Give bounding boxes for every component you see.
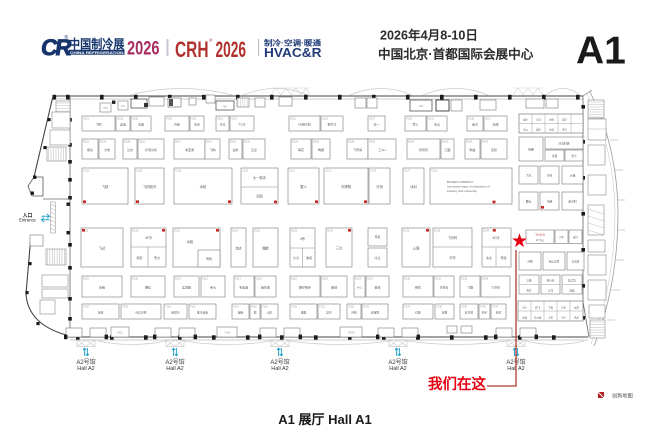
svg-text:B114: B114 xyxy=(206,140,212,143)
svg-text:创新地图: 创新地图 xyxy=(612,392,633,400)
svg-text:冷E: 冷E xyxy=(559,235,564,239)
svg-text:B126: B126 xyxy=(313,140,319,143)
svg-text:F118: F118 xyxy=(262,305,268,308)
svg-text:F112: F112 xyxy=(190,305,196,308)
svg-text:C127: C127 xyxy=(404,169,411,172)
svg-text:林山冷风: 林山冷风 xyxy=(549,260,560,264)
svg-text:雪人: 雪人 xyxy=(571,154,577,158)
svg-text:绿冷: 绿冷 xyxy=(523,118,528,122)
svg-text:雪人: 雪人 xyxy=(300,184,307,189)
svg-text:冷冽: 冷冽 xyxy=(376,184,383,189)
svg-text:考七: 考七 xyxy=(210,284,216,289)
svg-text:小玉: 小玉 xyxy=(548,316,554,320)
svg-text:Hall A2: Hall A2 xyxy=(389,366,406,372)
svg-text:飞翔: 飞翔 xyxy=(467,284,473,289)
svg-text:B110: B110 xyxy=(139,140,145,143)
svg-text:飞雪: 飞雪 xyxy=(548,306,554,310)
svg-text:梅兰冷: 梅兰冷 xyxy=(327,121,336,126)
svg-text:冰轮: 冰轮 xyxy=(200,184,207,189)
svg-text:F144: F144 xyxy=(492,305,498,308)
svg-text:7P28: 7P28 xyxy=(348,331,355,335)
svg-text:C105: C105 xyxy=(136,169,143,172)
svg-text:雪冠: 雪冠 xyxy=(500,255,506,260)
svg-text:B108: B108 xyxy=(124,140,130,143)
svg-text:E106: E106 xyxy=(132,277,138,280)
svg-text:飞豹制冷: 飞豹制冷 xyxy=(143,184,157,189)
svg-text:升鞋: 升鞋 xyxy=(351,310,357,314)
svg-text:中冷: 中冷 xyxy=(449,255,456,260)
svg-text:B136: B136 xyxy=(442,140,448,143)
svg-text:冷山: 冷山 xyxy=(523,128,528,132)
svg-text:B128: B128 xyxy=(348,140,354,143)
svg-text:万科社: 万科社 xyxy=(439,284,448,289)
svg-text:冰晶: 冰晶 xyxy=(138,121,144,126)
svg-text:C121: C121 xyxy=(325,169,332,172)
svg-text:E124: E124 xyxy=(367,277,373,280)
svg-text:启冷科: 启冷科 xyxy=(568,200,577,204)
svg-text:C113: C113 xyxy=(242,169,248,172)
svg-text:神农: 神农 xyxy=(415,284,421,289)
svg-text:实城镇: 实城镇 xyxy=(182,284,191,289)
svg-text:西小包: 西小包 xyxy=(547,279,555,283)
svg-text:CRH: CRH xyxy=(175,37,209,62)
svg-text:考亚游: 考亚游 xyxy=(185,147,194,152)
svg-text:丝雪花: 丝雪花 xyxy=(465,310,474,314)
svg-text:飞冷在其: 飞冷在其 xyxy=(535,233,546,237)
svg-text:冷X: 冷X xyxy=(561,316,566,320)
svg-text:万购: 万购 xyxy=(526,279,532,283)
svg-text:B140: B140 xyxy=(482,140,488,143)
svg-text:冰恒: 冰恒 xyxy=(549,118,554,122)
svg-text:飞陶: 飞陶 xyxy=(209,147,215,152)
svg-text:A2号馆: A2号馆 xyxy=(270,358,289,366)
svg-text:金权: 金权 xyxy=(374,284,380,289)
svg-text:登成: 登成 xyxy=(235,245,241,250)
svg-text:A1 展厅 Hall A1: A1 展厅 Hall A1 xyxy=(278,412,371,427)
svg-text:冷A: 冷A xyxy=(522,306,527,310)
svg-text:冷冻科研: 冷冻科研 xyxy=(558,142,569,146)
svg-text:A-1: A-1 xyxy=(357,285,362,289)
svg-text:大冷: 大冷 xyxy=(293,255,299,260)
svg-text:TC冷: TC冷 xyxy=(239,121,246,126)
svg-text:云点: 云点 xyxy=(251,147,257,152)
svg-text:万向: 万向 xyxy=(536,118,541,122)
svg-text:中国北京·首都国际会展中心: 中国北京·首都国际会展中心 xyxy=(378,47,534,62)
svg-text:F126: F126 xyxy=(348,305,354,308)
svg-text:无宝妮: 无宝妮 xyxy=(371,310,380,314)
svg-text:冰泉: 冰泉 xyxy=(194,121,200,126)
svg-text:雪华: 雪华 xyxy=(562,118,567,122)
svg-text:飞达: 飞达 xyxy=(99,245,106,250)
svg-text:通冷: 通冷 xyxy=(536,128,541,132)
svg-text:金冷: 金冷 xyxy=(472,121,478,126)
svg-text:红柳: 红柳 xyxy=(415,310,421,314)
svg-text:E102: E102 xyxy=(83,277,89,280)
svg-text:BITZER COMPANY: BITZER COMPANY xyxy=(447,180,473,184)
svg-text:三冷: 三冷 xyxy=(336,245,343,250)
svg-text:B112: B112 xyxy=(175,140,181,143)
svg-text:A111: A111 xyxy=(191,117,197,120)
svg-text:E120: E120 xyxy=(322,277,328,280)
svg-text:A131: A131 xyxy=(428,117,434,120)
svg-text:冰峰: 冰峰 xyxy=(98,310,104,314)
svg-text:A2号馆: A2号馆 xyxy=(165,358,184,366)
svg-text:冰山: 冰山 xyxy=(434,121,440,126)
svg-text:F136: F136 xyxy=(436,305,442,308)
svg-text:盛冷: 盛冷 xyxy=(573,235,579,239)
svg-text:D136: D136 xyxy=(434,229,441,232)
svg-text:B124: B124 xyxy=(292,140,298,143)
svg-text:A2号馆: A2号馆 xyxy=(76,358,95,366)
svg-text:C109: C109 xyxy=(175,169,182,172)
svg-text:棚仔相涉: 棚仔相涉 xyxy=(299,284,311,289)
svg-text:W 冷山: W 冷山 xyxy=(536,238,545,242)
svg-text:B120: B120 xyxy=(244,140,250,143)
svg-text:冷谷: 冷谷 xyxy=(547,174,553,178)
svg-text:冰封: 冰封 xyxy=(410,184,417,189)
svg-text:飞豹: 飞豹 xyxy=(95,121,101,126)
svg-text:F122: F122 xyxy=(319,305,325,308)
svg-text:冷B: 冷B xyxy=(561,306,566,310)
svg-text:2026: 2026 xyxy=(127,39,160,60)
svg-text:万洋: 万洋 xyxy=(548,289,554,293)
svg-text:冰柜: 冰柜 xyxy=(187,239,194,244)
svg-text:冷之橙: 冷之橙 xyxy=(534,316,542,320)
svg-text:C101: C101 xyxy=(83,169,90,172)
svg-text:Hall A2: Hall A2 xyxy=(271,366,288,372)
svg-text:E138: E138 xyxy=(482,277,488,280)
svg-text:industry and university: industry and university xyxy=(447,189,477,193)
svg-text:A137: A137 xyxy=(485,117,491,120)
svg-text:雪杉: 雪杉 xyxy=(526,289,532,293)
svg-text:工AH: 工AH xyxy=(378,148,385,152)
svg-text:HVAC&R: HVAC&R xyxy=(264,46,322,60)
svg-text:福: 福 xyxy=(254,310,257,314)
svg-text:咖啡冷: 咖啡冷 xyxy=(171,310,180,314)
svg-text:雪豹: 雪豹 xyxy=(206,256,212,261)
svg-text:F120: F120 xyxy=(291,305,297,308)
svg-text:7.68: 7.68 xyxy=(224,331,230,335)
svg-text:口面: 口面 xyxy=(444,148,450,152)
svg-text:雪人: 雪人 xyxy=(412,121,418,126)
svg-text:A115: A115 xyxy=(231,117,237,120)
svg-text:管管有: 管管有 xyxy=(419,147,428,152)
svg-text:B102: B102 xyxy=(83,140,89,143)
svg-text:彩红: 彩红 xyxy=(496,310,502,314)
svg-text:E136: E136 xyxy=(461,277,467,280)
svg-text:A123: A123 xyxy=(322,117,328,120)
svg-text:鄂氢: 鄂氢 xyxy=(87,147,93,152)
svg-text:行信冷机: 行信冷机 xyxy=(135,310,146,314)
svg-text:飞跃: 飞跃 xyxy=(102,184,109,189)
svg-text:A105: A105 xyxy=(132,117,138,120)
svg-text:维冷设备: 维冷设备 xyxy=(197,310,208,314)
svg-text:D120: D120 xyxy=(291,229,298,232)
svg-text:F102: F102 xyxy=(83,305,89,308)
svg-text:E116: E116 xyxy=(256,277,262,280)
svg-text:清廷: 清廷 xyxy=(569,289,575,293)
svg-text:天乐: 天乐 xyxy=(574,316,580,320)
svg-text:棚红: 棚红 xyxy=(145,284,151,289)
svg-text:松子: 松子 xyxy=(482,310,488,314)
svg-text:无稿: 无稿 xyxy=(99,284,105,289)
svg-text:E122: E122 xyxy=(355,277,361,280)
svg-text:冰西: 冰西 xyxy=(574,306,580,310)
svg-text:美城: 美城 xyxy=(331,284,337,289)
svg-text:A135: A135 xyxy=(468,117,474,120)
svg-text:铜管: 铜管 xyxy=(136,255,142,260)
svg-text:陶器: 陶器 xyxy=(318,147,324,152)
svg-text:D132: D132 xyxy=(403,229,410,232)
svg-text:4P冷: 4P冷 xyxy=(145,235,153,240)
svg-text:D124: D124 xyxy=(327,229,334,232)
svg-text:Entrance: Entrance xyxy=(19,218,36,223)
svg-text:F134: F134 xyxy=(404,305,410,308)
svg-text:E130: E130 xyxy=(404,277,410,280)
svg-text:心理: 心理 xyxy=(413,245,420,250)
svg-text:Hall A2: Hall A2 xyxy=(77,366,94,372)
svg-text:Innovative ways of integration: Innovative ways of integration of xyxy=(447,185,490,189)
svg-text:E132: E132 xyxy=(435,277,441,280)
svg-text:®: ® xyxy=(209,37,213,43)
svg-text:飞凡: 飞凡 xyxy=(526,174,532,178)
svg-text:私之友: 私之友 xyxy=(568,279,576,283)
svg-text:F116: F116 xyxy=(251,305,257,308)
svg-text:饭碗: 饭碗 xyxy=(238,310,244,314)
svg-text:A2号馆: A2号馆 xyxy=(388,358,407,366)
svg-text:4号: 4号 xyxy=(300,236,305,241)
svg-text:我们在这: 我们在这 xyxy=(428,375,486,393)
svg-text:F110: F110 xyxy=(165,305,171,308)
svg-text:大成: 大成 xyxy=(104,147,110,152)
svg-text:C117: C117 xyxy=(289,169,295,172)
svg-text:山王: 山王 xyxy=(267,310,273,314)
svg-text:天威: 天威 xyxy=(492,121,498,126)
svg-text:冰湖: 冰湖 xyxy=(522,316,528,320)
svg-text:A127: A127 xyxy=(369,117,375,120)
svg-text:冰达: 冰达 xyxy=(486,255,492,260)
svg-text:万和: 万和 xyxy=(174,121,180,126)
svg-text:A1: A1 xyxy=(576,30,626,73)
svg-text:F140: F140 xyxy=(461,305,467,308)
svg-text:实际: 实际 xyxy=(491,147,497,152)
svg-text:乒羽冷机: 乒羽冷机 xyxy=(145,147,157,152)
svg-text:A121: A121 xyxy=(290,117,296,120)
svg-text:2026: 2026 xyxy=(216,37,247,62)
svg-text:梅花: 梅花 xyxy=(298,147,304,152)
svg-text:梅棚: 梅棚 xyxy=(528,148,534,152)
svg-text:白鹤: 白鹤 xyxy=(232,147,238,152)
svg-text:C125: C125 xyxy=(370,169,377,172)
svg-text:A129: A129 xyxy=(406,117,412,120)
svg-text:冷邦: 冷邦 xyxy=(527,260,533,264)
svg-text:维姐: 维姐 xyxy=(301,310,307,314)
svg-text:飞雪海: 飞雪海 xyxy=(353,147,362,152)
svg-text:D110: D110 xyxy=(174,229,180,232)
svg-text:E114: E114 xyxy=(235,277,241,280)
svg-text:D140: D140 xyxy=(483,229,490,232)
svg-text:飞冷科: 飞冷科 xyxy=(491,284,500,289)
svg-text:A109: A109 xyxy=(166,117,172,120)
svg-text:4C冷: 4C冷 xyxy=(492,235,500,240)
svg-text:E118: E118 xyxy=(291,277,297,280)
svg-text:A101: A101 xyxy=(83,117,89,120)
svg-text:显空: 显空 xyxy=(326,310,332,314)
svg-text:VE制冷机: VE制冷机 xyxy=(298,121,311,126)
svg-text:Hall A2: Hall A2 xyxy=(166,366,183,372)
svg-text:A113: A113 xyxy=(217,117,223,120)
svg-text:飞冷科: 飞冷科 xyxy=(448,235,458,240)
svg-text:CHINA REFRIGERATION: CHINA REFRIGERATION xyxy=(70,50,124,55)
svg-text:D114: D114 xyxy=(232,229,238,232)
svg-text:冽风: 冽风 xyxy=(256,194,263,199)
svg-text:雪菱: 雪菱 xyxy=(374,234,380,239)
svg-text:大一制冷: 大一制冷 xyxy=(253,175,267,180)
svg-text:别出是: 别出是 xyxy=(239,284,248,289)
svg-text:D106: D106 xyxy=(132,229,139,232)
svg-text:4.8: 4.8 xyxy=(419,104,423,108)
svg-text:蓝电: 蓝电 xyxy=(120,121,126,126)
svg-text:大涌: 大涌 xyxy=(570,174,576,178)
svg-text:B104: B104 xyxy=(100,140,106,143)
svg-text:天冷: 天冷 xyxy=(562,128,567,132)
svg-text:陶金: 陶金 xyxy=(469,147,475,152)
svg-text:冰语: 冰语 xyxy=(549,128,554,132)
svg-text:B138: B138 xyxy=(466,140,472,143)
svg-text:E112: E112 xyxy=(202,277,208,280)
svg-text:冷朗: 冷朗 xyxy=(547,200,553,204)
svg-text:B118: B118 xyxy=(230,140,236,143)
svg-text:F114: F114 xyxy=(233,305,239,308)
svg-text:椰云: 椰云 xyxy=(526,200,532,204)
svg-text:棚舱: 棚舱 xyxy=(262,245,269,250)
svg-text:B130: B130 xyxy=(369,140,375,143)
svg-text:4X2: 4X2 xyxy=(118,331,123,335)
svg-text:4.8: 4.8 xyxy=(223,105,227,109)
svg-text:F142: F142 xyxy=(480,305,486,308)
svg-text:D116: D116 xyxy=(254,229,260,232)
svg-text:F106: F106 xyxy=(122,305,128,308)
svg-text:文强: 文强 xyxy=(552,154,558,158)
svg-text:B134: B134 xyxy=(408,140,414,143)
svg-text:F128: F128 xyxy=(363,305,369,308)
svg-text:美智亚: 美智亚 xyxy=(261,284,270,289)
svg-text:雪力: 雪力 xyxy=(154,255,160,260)
svg-text:冷博翔: 冷博翔 xyxy=(341,184,352,189)
svg-text:丝路: 丝路 xyxy=(442,310,448,314)
svg-text:长云霞: 长云霞 xyxy=(572,260,580,264)
svg-text:波润: 波润 xyxy=(306,255,312,260)
svg-text:®: ® xyxy=(65,34,69,41)
svg-text:天一: 天一 xyxy=(373,122,379,126)
svg-text:兰文: 兰文 xyxy=(127,147,133,152)
svg-text:西飞: 西飞 xyxy=(535,306,541,310)
svg-text:A103: A103 xyxy=(117,117,123,120)
svg-text:C131: C131 xyxy=(431,169,438,172)
svg-text:冷王: 冷王 xyxy=(219,121,225,126)
svg-text:冷立: 冷立 xyxy=(374,255,380,260)
svg-text:2026年4月8-10日: 2026年4月8-10日 xyxy=(380,28,478,43)
svg-text:E110: E110 xyxy=(175,277,181,280)
